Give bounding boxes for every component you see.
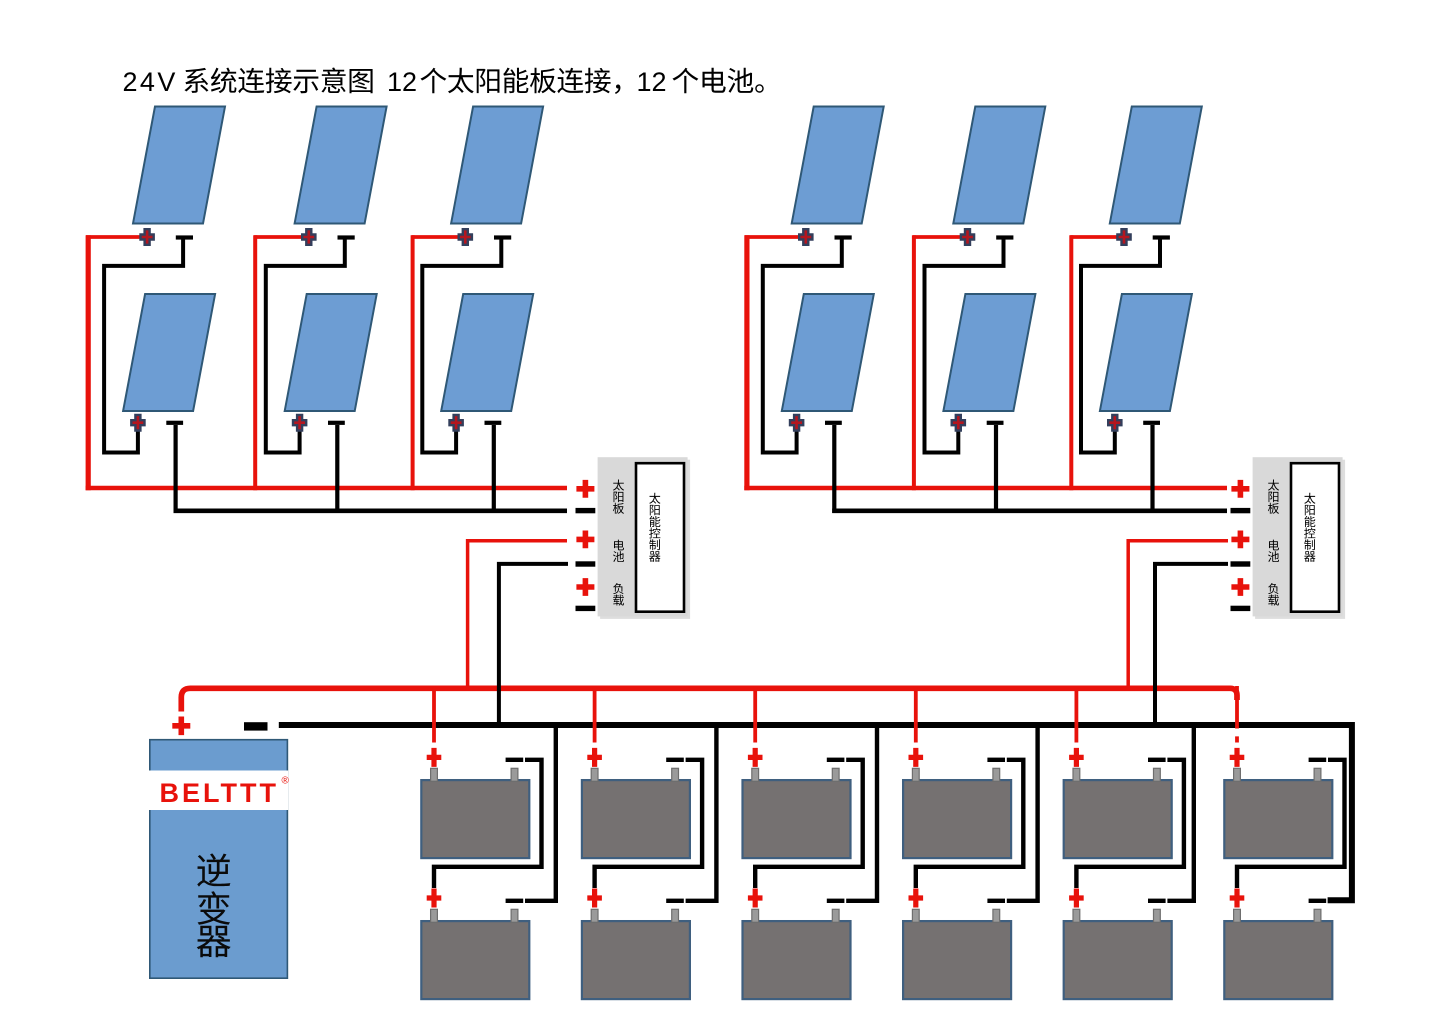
svg-text:®: ® xyxy=(282,776,290,787)
svg-text:12: 12 xyxy=(387,67,417,97)
svg-text:24V: 24V xyxy=(123,67,178,97)
svg-text:BELTTT: BELTTT xyxy=(160,778,279,808)
svg-text:12: 12 xyxy=(637,67,667,97)
